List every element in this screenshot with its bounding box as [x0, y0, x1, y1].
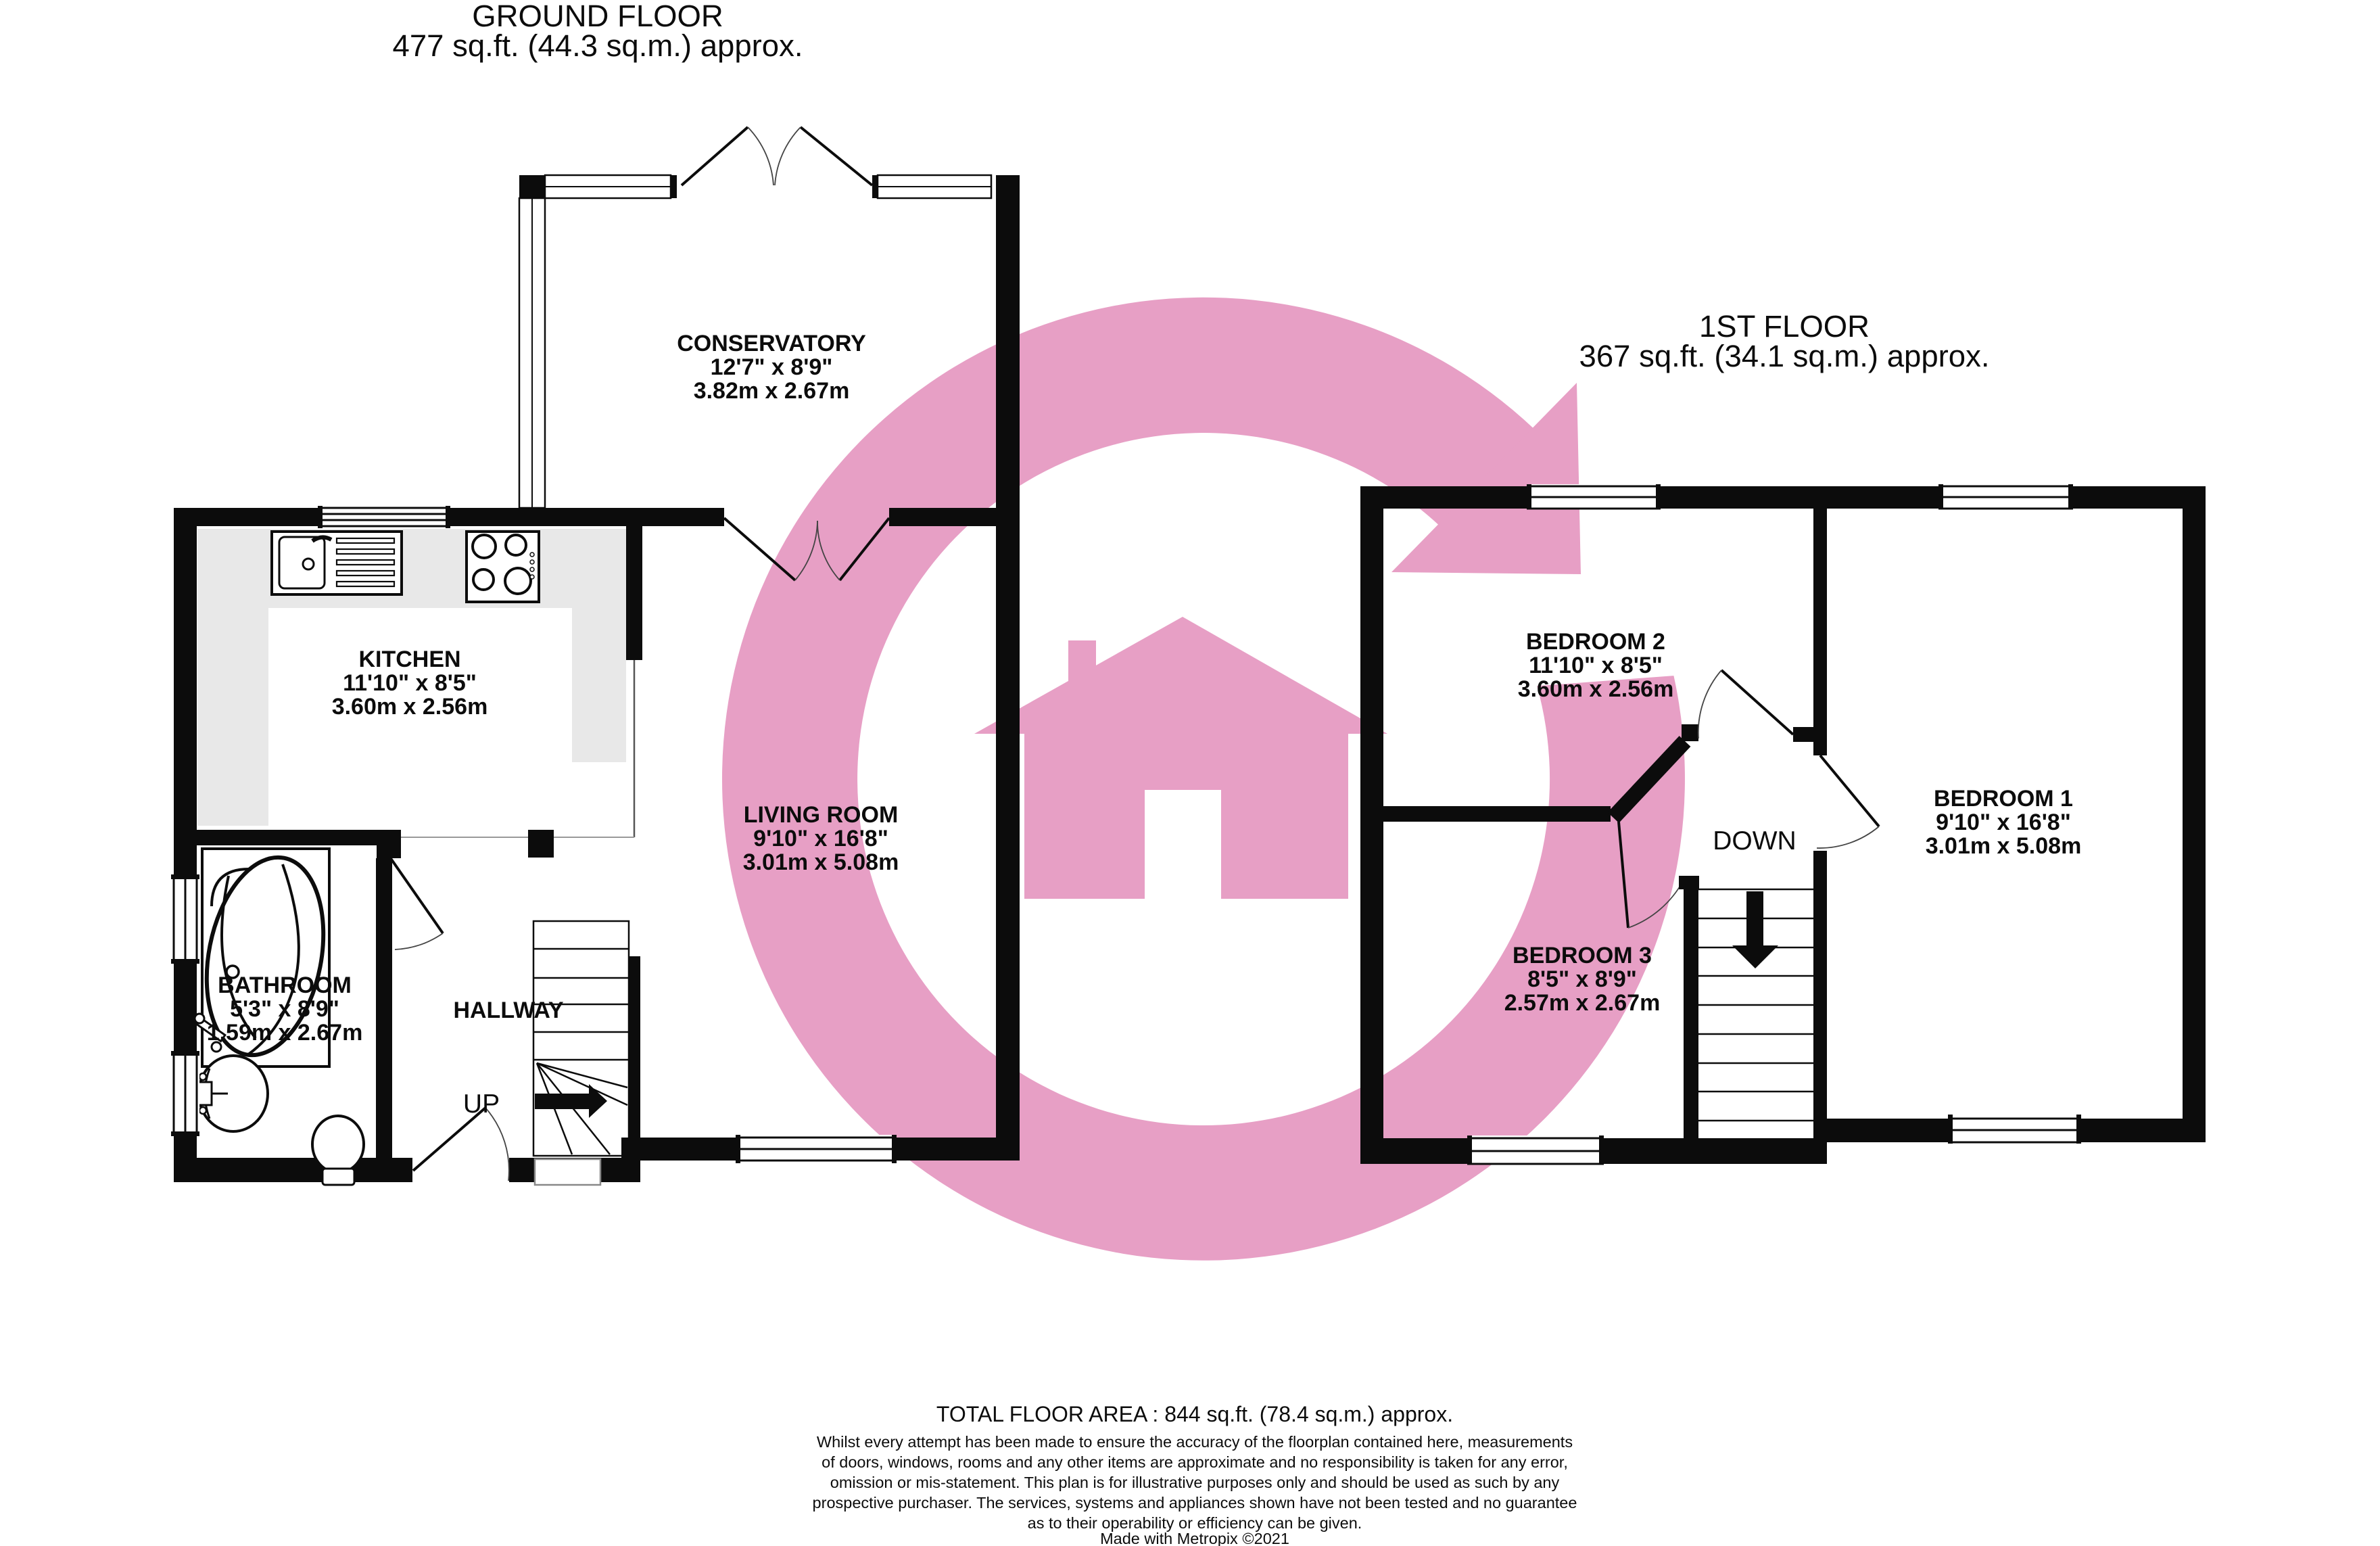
svg-text:prospective purchaser. The ser: prospective purchaser. The services, sys…	[813, 1494, 1577, 1512]
svg-text:BEDROOM 1: BEDROOM 1	[1934, 786, 2073, 812]
svg-text:5'3" x 8'9": 5'3" x 8'9"	[230, 996, 339, 1022]
svg-text:Made with Metropix ©2021: Made with Metropix ©2021	[1100, 1530, 1289, 1546]
svg-text:3.01m x 5.08m: 3.01m x 5.08m	[1926, 833, 2082, 859]
svg-text:TOTAL FLOOR AREA : 844 sq.ft.: TOTAL FLOOR AREA : 844 sq.ft. (78.4 sq.m…	[936, 1402, 1453, 1426]
svg-text:367 sq.ft. (34.1 sq.m.) approx: 367 sq.ft. (34.1 sq.m.) approx.	[1579, 339, 1990, 373]
svg-text:1.59m x 2.67m: 1.59m x 2.67m	[207, 1020, 363, 1046]
svg-text:BATHROOM: BATHROOM	[218, 973, 352, 998]
svg-text:DOWN: DOWN	[1713, 826, 1796, 856]
svg-text:KITCHEN: KITCHEN	[358, 647, 460, 672]
svg-text:3.82m x 2.67m: 3.82m x 2.67m	[694, 378, 850, 404]
svg-text:3.60m x 2.56m: 3.60m x 2.56m	[332, 694, 488, 720]
svg-text:CONSERVATORY: CONSERVATORY	[677, 331, 866, 356]
svg-text:9'10" x 16'8": 9'10" x 16'8"	[753, 826, 888, 851]
svg-text:LIVING ROOM: LIVING ROOM	[744, 802, 899, 828]
svg-text:12'7" x 8'9": 12'7" x 8'9"	[711, 354, 833, 380]
svg-text:of doors, windows, rooms and a: of doors, windows, rooms and any other i…	[822, 1453, 1568, 1471]
svg-text:11'10" x 8'5": 11'10" x 8'5"	[1529, 653, 1663, 678]
svg-text:UP: UP	[463, 1090, 500, 1119]
svg-text:BEDROOM 3: BEDROOM 3	[1513, 943, 1652, 968]
svg-text:omission or mis-statement. Thi: omission or mis-statement. This plan is …	[830, 1474, 1560, 1491]
svg-text:3.01m x 5.08m: 3.01m x 5.08m	[743, 849, 899, 875]
svg-text:HALLWAY: HALLWAY	[453, 998, 563, 1023]
svg-text:3.60m x 2.56m: 3.60m x 2.56m	[1518, 676, 1674, 702]
svg-text:8'5" x 8'9": 8'5" x 8'9"	[1527, 966, 1637, 992]
svg-text:2.57m x 2.67m: 2.57m x 2.67m	[1504, 990, 1661, 1016]
svg-text:9'10" x 16'8": 9'10" x 16'8"	[1936, 810, 2071, 835]
svg-text:BEDROOM 2: BEDROOM 2	[1526, 629, 1665, 655]
svg-text:477 sq.ft. (44.3 sq.m.) approx: 477 sq.ft. (44.3 sq.m.) approx.	[393, 28, 803, 63]
svg-text:Whilst every attempt has been: Whilst every attempt has been made to en…	[817, 1433, 1573, 1451]
svg-text:11'10" x 8'5": 11'10" x 8'5"	[343, 670, 477, 696]
